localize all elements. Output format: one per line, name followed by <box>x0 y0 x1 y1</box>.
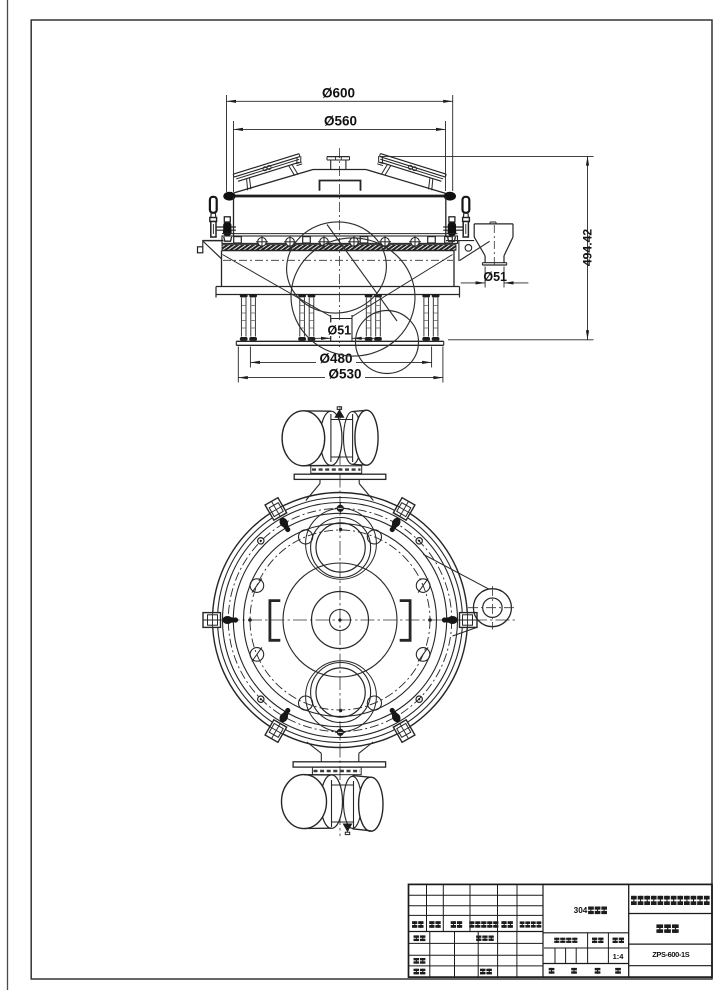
svg-text:Ø560: Ø560 <box>324 114 357 129</box>
svg-text:304: 304 <box>574 906 588 915</box>
svg-text:Ø51: Ø51 <box>327 324 351 338</box>
svg-text:ZPS-600-1S: ZPS-600-1S <box>652 950 690 959</box>
svg-text:Ø530: Ø530 <box>328 367 361 382</box>
svg-text:Ø600: Ø600 <box>322 86 355 101</box>
svg-text:494.42: 494.42 <box>581 229 595 266</box>
svg-text:1:4: 1:4 <box>613 952 625 961</box>
svg-text:Ø51: Ø51 <box>483 270 507 284</box>
